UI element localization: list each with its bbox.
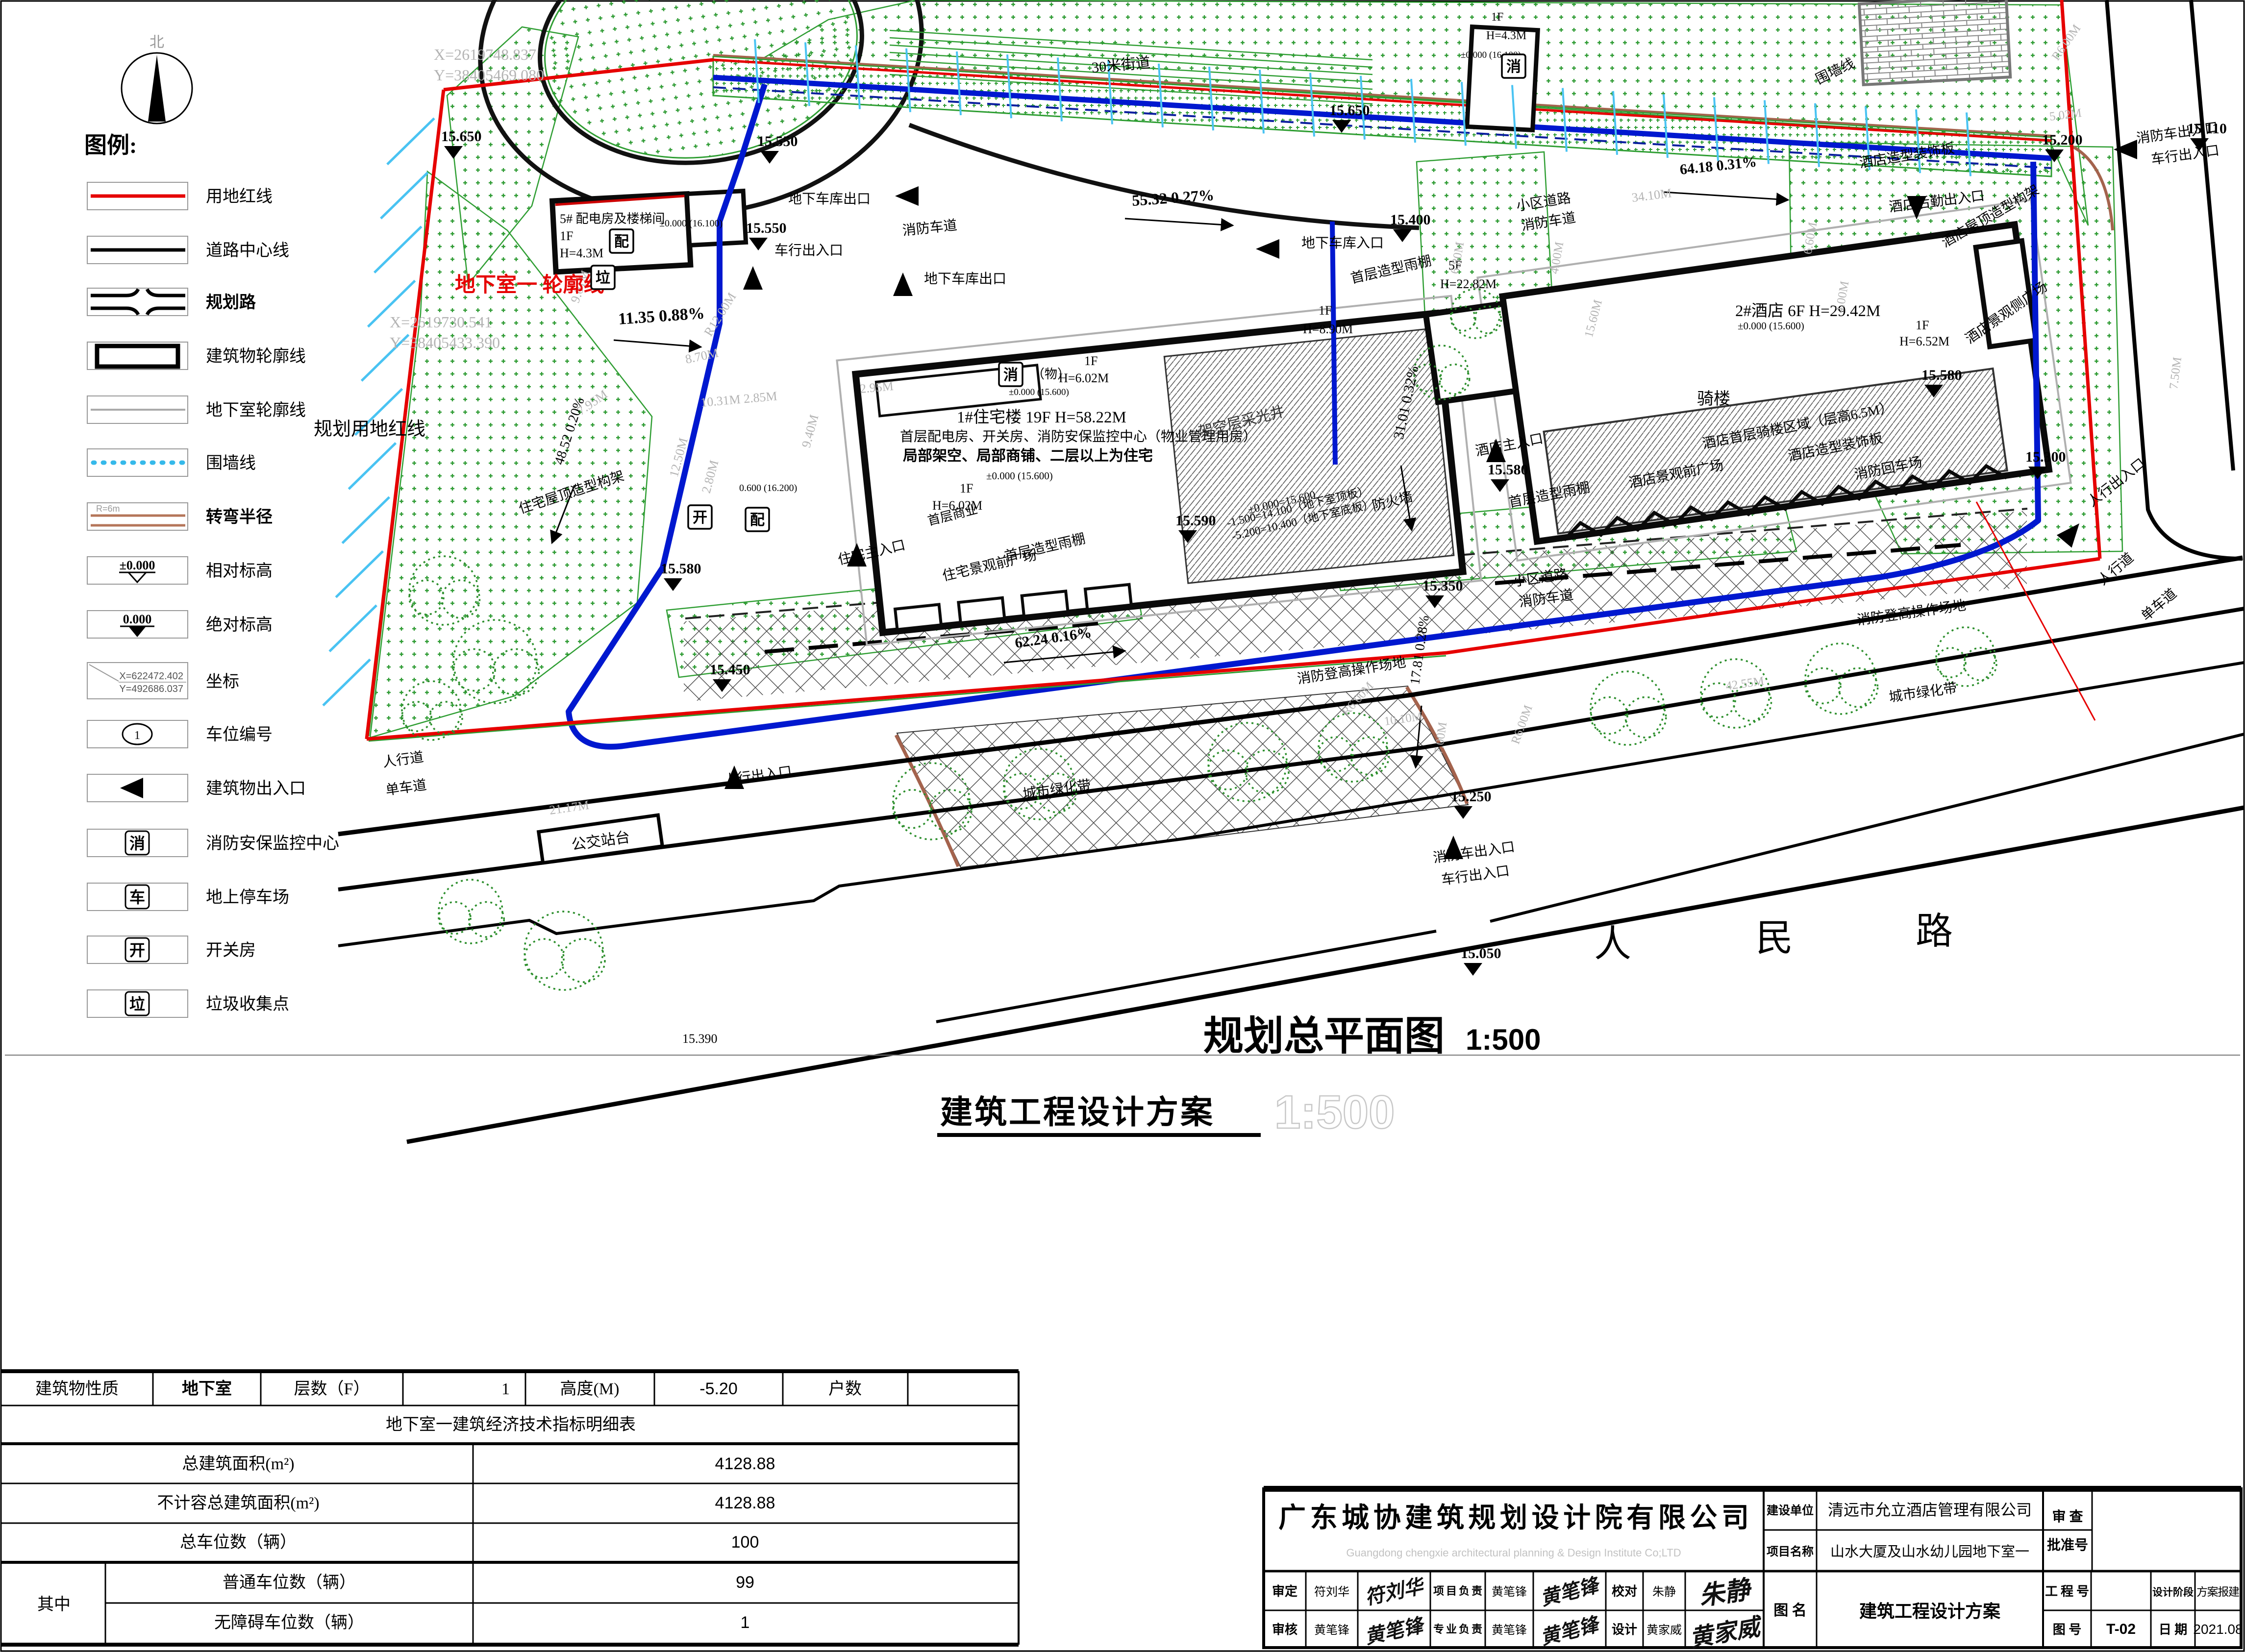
glyph-box-char: 配	[614, 234, 629, 250]
plan-label: H=4.3M	[1486, 29, 1526, 42]
sheet-title: 建筑工程设计方案	[940, 1095, 1215, 1131]
elevation-value: 15.650	[441, 128, 482, 145]
legend-sym-value: 1	[134, 729, 140, 742]
bus-stop: 公交站台	[539, 815, 663, 863]
plan-label: 地下车库入口	[1301, 235, 1384, 251]
legend-label: 规划路	[206, 293, 256, 312]
field-label: 审核	[1272, 1622, 1297, 1637]
field-name: 黄笔锋	[1492, 1624, 1527, 1637]
field-name: 黄家威	[1646, 1624, 1682, 1637]
legend-item-coordinate: X=622472.402 Y=492686.037 坐标	[87, 663, 239, 699]
plan-label: 消防车出入口	[1432, 839, 1516, 866]
plan-label: 城市绿化带	[1888, 680, 1958, 705]
table-row-label: 普通车位数（辆）	[223, 1573, 356, 1592]
plan-label: 10.31M 2.85M	[700, 389, 778, 410]
legend-label: 地下室轮廓线	[206, 401, 306, 419]
table-row-value: 100	[731, 1533, 759, 1552]
plan-label: 单车道	[2138, 586, 2180, 624]
plan-label: 1F	[960, 481, 973, 495]
legend-label: 转弯半径	[206, 507, 273, 526]
signature: 朱静	[1697, 1576, 1754, 1611]
drawing-name: 建筑工程设计方案	[1859, 1602, 2001, 1621]
plan-label: 骑楼	[1697, 390, 1730, 408]
elevation-value: 15.650	[1329, 102, 1370, 119]
approval-label-1: 审 查	[2052, 1508, 2083, 1525]
table-cell: 地下室	[182, 1379, 232, 1398]
project-label: 项目名称	[1767, 1545, 1814, 1558]
legend-item-building-entrance: 建筑物出入口	[87, 774, 306, 802]
field-label: 审定	[1272, 1584, 1297, 1599]
legend-coord-x: X=622472.402	[119, 671, 183, 682]
entrance-arrow	[893, 272, 913, 296]
dimension-arrow	[1125, 219, 1233, 225]
site-plan-svg: 公交站台	[0, 0, 2245, 1652]
legend-item-turning-radius: R=6m 转弯半径	[87, 503, 273, 530]
plan-label: H=22.82M	[1440, 277, 1497, 291]
plan-label: 车行出入口	[774, 243, 843, 258]
legend-glyph: 消	[129, 835, 145, 852]
road-name: 人 民 路	[1594, 911, 1953, 965]
legend-sym-value: 0.000	[123, 612, 152, 626]
plan-label: 1F	[1491, 11, 1503, 24]
cyan-tick	[323, 660, 370, 706]
glyph-box-char: 配	[750, 512, 765, 528]
cyan-tick	[387, 118, 434, 164]
sheet-title-ghost-scale: 1:500	[1274, 1086, 1395, 1138]
legend-label: 绝对标高	[206, 616, 273, 634]
cyan-tick	[329, 605, 376, 651]
legend-glyph: 开	[129, 941, 145, 959]
plan-label: 9.40M	[799, 413, 822, 449]
elevation-value: 15.050	[1461, 945, 1501, 962]
plan-label: 11.35 0.88%	[618, 304, 705, 328]
drawing-name-label: 图 名	[1773, 1603, 1807, 1619]
glyph-box-char: 消	[1003, 367, 1018, 383]
legend-sym-value: ±0.000	[120, 558, 155, 572]
plan-label: 8.70M	[684, 345, 720, 367]
road-name-char: 路	[1916, 911, 1953, 952]
legend-item-ground-parking: 车 地上停车场	[87, 883, 289, 911]
plan-label: 7.50M	[2167, 356, 2184, 390]
approval-label-2: 批准号	[2047, 1537, 2088, 1553]
elevation-value: 15.300	[2025, 449, 2066, 465]
plan-label: 局部架空、局部商铺、二层以上为住宅	[903, 447, 1153, 464]
legend-item-absolute-elevation: 0.000 绝对标高	[87, 611, 273, 638]
plan-label: 人行道	[382, 749, 425, 770]
elevation-value: 15.580	[1488, 462, 1528, 478]
field-name: 黄笔锋	[1492, 1585, 1527, 1599]
plan-label: 2.80M	[699, 459, 722, 495]
field-name: 符刘华	[1314, 1585, 1349, 1599]
plan-label: ±0.000 (15.600)	[986, 470, 1053, 482]
plan-label: R6.00M	[1509, 703, 1535, 746]
plan-label: 7.00M	[1432, 721, 1449, 755]
client-value: 清远市允立酒店管理有限公司	[1828, 1501, 2032, 1519]
plan-label: 4.00M	[1547, 241, 1566, 275]
legend-item-parking-number: 1 车位编号	[87, 720, 273, 748]
north-label: 北	[150, 34, 164, 50]
elevation-value: 15.110	[2187, 121, 2227, 137]
cyan-tick	[342, 497, 389, 543]
legend-label: 相对标高	[206, 562, 273, 580]
table-row-label: 总建筑面积(m²)	[182, 1455, 294, 1473]
entrance-arrow	[743, 266, 763, 290]
legend-label: 垃圾收集点	[206, 995, 289, 1013]
elevation-triangle	[760, 151, 779, 164]
table-title: 地下室一建筑经济技术指标明细表	[386, 1415, 636, 1434]
plan-label: 1F	[1319, 303, 1332, 318]
legend-label: 坐标	[206, 672, 239, 691]
tree-cluster	[1805, 668, 1841, 703]
elevation-value: 15.200	[2042, 132, 2083, 148]
plan-label: 2.95M	[859, 379, 894, 396]
plan-label: 首层造型雨棚	[1349, 253, 1433, 287]
tree-cluster	[562, 939, 605, 982]
field-label: 专业负责	[1433, 1623, 1482, 1635]
plan-label: H=6.02M	[1059, 371, 1109, 385]
table-row-label: 不计容总建筑面积(m²)	[157, 1494, 319, 1512]
title-block: 广东城协建筑规划设计院有限公司 Guangdong chengxie archi…	[1264, 1489, 2243, 1652]
legend-item-switch-room: 开 开关房	[87, 936, 256, 963]
plan-title-scale: 1:500	[1466, 1023, 1541, 1056]
legend-item-planned-road: 规划路	[87, 288, 256, 316]
plan-label: 2#酒店 6F H=29.42M	[1735, 302, 1880, 320]
plan-label: 地下室一 轮廓线	[455, 273, 604, 296]
legend-radius-value: R=6m	[96, 504, 120, 514]
elevation-value: 15.580	[1921, 367, 1962, 383]
plan-label: 1F	[1084, 354, 1098, 368]
legend-title: 图例:	[84, 133, 137, 158]
glyph-box-char: 开	[693, 510, 707, 526]
table-row-label: 总车位数（辆）	[180, 1533, 297, 1552]
legend-item-wall-line: 围墙线	[87, 449, 256, 476]
table-group-label: 其中	[37, 1595, 71, 1614]
company-name-en: Guangdong chengxie architectural plannin…	[1346, 1547, 1681, 1559]
legend-label: 消防安保监控中心	[206, 834, 339, 853]
legend-label: 车位编号	[206, 725, 273, 744]
glyph-box-char: 消	[1506, 59, 1521, 75]
legend-label: 道路中心线	[206, 241, 289, 260]
table-cell: 层数（F）	[294, 1380, 370, 1398]
field-name: 黄笔锋	[1314, 1624, 1349, 1637]
stage-value: 方案报建	[2196, 1586, 2240, 1598]
plan-label: Y=38405433.390	[390, 334, 500, 351]
road-name-char: 民	[1756, 918, 1793, 959]
plan-label: ±0.000 (15.600)	[1009, 387, 1069, 397]
plan-label: 车行出入口	[1441, 863, 1511, 888]
elevation-value: 15.400	[1390, 212, 1431, 228]
legend-label: 建筑物出入口	[206, 779, 306, 798]
signature: 黄笔锋	[1538, 1613, 1603, 1649]
tree-cluster	[524, 939, 564, 978]
stage-label: 设计阶段	[2152, 1586, 2194, 1598]
legend-item-basement-outline: 地下室轮廓线	[87, 396, 306, 423]
table-cell: 户数	[828, 1380, 862, 1398]
plan-label: H=4.3M	[560, 246, 603, 260]
building-small-north	[1467, 27, 1538, 130]
legend-item-fire-security-center: 消 消防安保监控中心	[87, 829, 339, 857]
table-row-value: 4128.88	[715, 1494, 775, 1512]
cyan-tick	[374, 226, 422, 272]
legend-glyph: 垃	[129, 995, 145, 1013]
tree-cluster	[1936, 648, 1966, 677]
field-name: 朱静	[1652, 1585, 1676, 1599]
table-row-value: 4128.88	[715, 1455, 775, 1473]
elevation-value: 15.590	[1175, 513, 1216, 529]
elevation-value: 15.450	[710, 662, 750, 678]
table-row-label: 无障碍车位数（辆）	[214, 1613, 364, 1632]
field-label: 设计	[1612, 1623, 1637, 1637]
dimension-arrow	[614, 340, 701, 347]
legend-item-building-outline: 建筑物轮廓线	[87, 342, 306, 370]
plan-label: H=6.52M	[1899, 334, 1949, 348]
plan-label: 消防车道	[901, 217, 958, 239]
tree-cluster	[439, 880, 502, 943]
elevation-value: 15.250	[1451, 789, 1492, 805]
plan-label: 单车道	[385, 777, 428, 798]
legend-item-relative-elevation: ±0.000 相对标高	[87, 557, 273, 584]
drawing-no: T-02	[2106, 1621, 2136, 1637]
plan-label: 5# 配电房及楼梯间	[560, 212, 665, 226]
cyan-tick	[349, 443, 396, 489]
road-name-char: 人	[1594, 924, 1631, 965]
plan-label: 21.17M	[549, 798, 590, 817]
plan-label: H=8.90M	[1303, 322, 1353, 336]
elevation-value: 15.580	[661, 561, 701, 577]
cyan-tick	[381, 173, 428, 219]
date-label: 日 期	[2159, 1623, 2188, 1637]
plan-label: ±0.000 (15.600)	[1738, 320, 1804, 332]
plan-label: 规划用地红线	[314, 419, 425, 440]
client-label: 建设单位	[1767, 1504, 1814, 1517]
legend-coord-y: Y=492686.037	[119, 684, 183, 694]
plan-label: ±0.000 (16.100)	[659, 218, 723, 229]
elevation-value: 15.550	[757, 133, 798, 149]
dimension-arrow	[1664, 192, 1788, 200]
legend-glyph: 车	[129, 888, 145, 906]
legend-item-red-line: 用地红线	[87, 182, 273, 210]
plan-label: 消防登高操作场地	[1856, 597, 1967, 628]
plan-label: 64.18 0.31%	[1679, 154, 1757, 178]
entrance-arrow	[1256, 239, 1279, 259]
tree-cluster	[1625, 697, 1666, 738]
plan-label: 1F	[560, 229, 573, 243]
plan-label: 0.600 (16.200)	[739, 483, 797, 493]
glyph-box-char: 垃	[596, 270, 610, 286]
elevation-triangle	[664, 578, 682, 591]
table-row-value: 1	[741, 1613, 750, 1632]
table-cell: 高度(M)	[560, 1380, 620, 1398]
legend-label: 开关房	[206, 941, 256, 960]
elevation-triangle	[1393, 229, 1412, 242]
project-no-label: 工程号	[2045, 1584, 2089, 1599]
existing-building	[1859, 0, 2010, 85]
entrance-arrow	[895, 186, 919, 206]
table-row-value: 99	[736, 1573, 754, 1592]
plan-title: 规划总平面图	[1203, 1014, 1445, 1059]
plan-label: 15.390	[682, 1032, 718, 1046]
signature: 黄笔锋	[1363, 1614, 1427, 1648]
legend-item-garbage-collection: 垃 垃圾收集点	[87, 990, 289, 1017]
plan-label: 地下车库出口	[788, 191, 871, 207]
table-cell: 1	[501, 1380, 510, 1398]
legend-item-road-centerline: 道路中心线	[87, 236, 289, 264]
field-label: 校对	[1612, 1584, 1637, 1599]
company-name: 广东城协建筑规划设计院有限公司	[1278, 1503, 1749, 1533]
legend: 图例: 用地红线 道路中心线 规划路 建筑物轮廓线 地下室轮廓线	[84, 133, 339, 1017]
north-compass: 北	[122, 34, 192, 123]
signature: 黄笔锋	[1538, 1574, 1603, 1610]
sheet-title-underline	[937, 1133, 1261, 1137]
cyan-tick	[336, 551, 383, 597]
plan-label: Y=38405469.080	[434, 66, 544, 84]
legend-label: 围墙线	[206, 454, 256, 472]
elevation-value: 15.550	[746, 220, 787, 236]
plan-label: 1F	[1916, 318, 1929, 332]
elevation-triangle	[1464, 963, 1482, 976]
elevation-triangle	[749, 238, 768, 250]
signature: 符刘华	[1363, 1575, 1427, 1609]
basement-indicator-table: 建筑物性质 地下室 层数（F） 1 高度(M) -5.20 户数 地下室一建筑经…	[1, 1371, 1019, 1645]
drawing-no-label: 图 号	[2053, 1623, 2082, 1637]
date-value: 2021.08	[2193, 1622, 2243, 1637]
plan-label: X=2619730.541	[390, 313, 492, 331]
table-cell: -5.20	[699, 1380, 738, 1398]
plan-label: X=2619748.837	[434, 46, 536, 63]
legend-label: 建筑物轮廓线	[206, 347, 306, 366]
plan-label: 1#住宅楼 19F H=58.22M	[957, 408, 1126, 426]
elevation-value: 15.350	[1422, 578, 1463, 594]
legend-label: 地上停车场	[206, 888, 289, 907]
plan-label: 地下车库出口	[924, 271, 1006, 287]
plan-label: 34.10M	[1631, 186, 1672, 205]
project-value: 山水大厦及山水幼儿园地下室一	[1830, 1544, 2029, 1560]
plan-label: 车行出入口	[2150, 143, 2220, 168]
legend-label: 用地红线	[206, 187, 273, 206]
drawing-sheet: 公交站台	[0, 0, 2245, 1652]
field-label: 项目负责	[1433, 1585, 1482, 1597]
elevation-triangle	[1454, 806, 1472, 819]
tree-cluster	[469, 902, 504, 937]
table-cell: 建筑物性质	[35, 1380, 119, 1398]
